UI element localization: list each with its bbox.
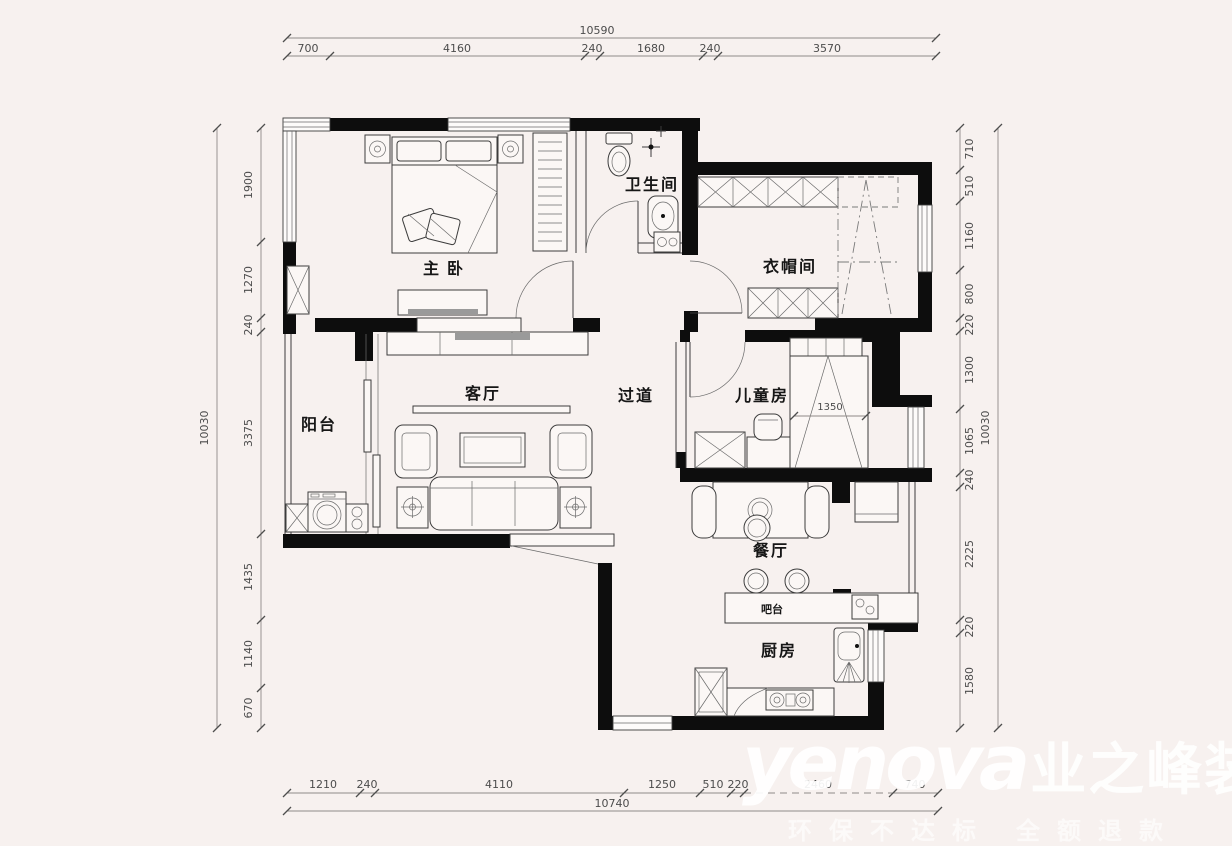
shaft-box	[287, 266, 309, 314]
sofa	[430, 477, 558, 530]
dresser-master	[398, 290, 487, 315]
nightstand-left	[365, 135, 390, 163]
fridge	[695, 668, 727, 716]
coffee-table	[460, 433, 525, 467]
dim-top-seg: 3570	[813, 42, 841, 55]
cloakroom-dashed-zone	[838, 177, 898, 318]
children-cabinet	[695, 432, 745, 468]
room-label-dining-room: 餐厅	[752, 541, 789, 560]
window-cloakroom-east	[918, 205, 932, 272]
stove	[766, 690, 813, 710]
dining-cabinet	[855, 482, 898, 522]
dining-chair-bottom	[744, 515, 770, 541]
room-label-master-bedroom: 主 卧	[423, 259, 465, 278]
nightstand-right	[498, 135, 523, 163]
dim-right-seg: 2225	[963, 540, 976, 568]
dim-right-total: 10030	[979, 411, 992, 446]
room-label-bathroom: 卫生间	[625, 175, 679, 194]
armchair-left	[395, 425, 437, 478]
balcony-sink	[346, 504, 368, 532]
floorplan-drawing: 主 卧 卫生间 衣帽间 过道 儿童房 客厅 阳台 餐厅 吧台 厨房 10590 …	[0, 0, 1232, 842]
room-label-kitchen: 厨房	[761, 641, 797, 660]
kitchen-sink	[834, 628, 864, 683]
door-bathroom	[586, 201, 638, 253]
side-table-left	[397, 487, 428, 528]
room-label-children-room: 儿童房	[734, 386, 789, 405]
dim-left-seg: 1140	[242, 640, 255, 668]
window-kitchen-south	[613, 716, 672, 730]
room-label-balcony: 阳台	[301, 415, 337, 434]
dim-right-seg: 220	[963, 617, 976, 638]
dining-chair-right	[805, 486, 829, 538]
window-master-west	[283, 131, 296, 242]
toilet	[606, 133, 632, 176]
dim-right-seg: 220	[963, 315, 976, 336]
dim-right-seg: 1300	[963, 356, 976, 384]
armchair-right	[550, 425, 592, 478]
dim-top-seg: 4160	[443, 42, 471, 55]
dim-left-seg: 240	[242, 315, 255, 336]
cloakroom-wardrobe-bottom	[748, 288, 838, 318]
dim-left-seg: 670	[242, 698, 255, 719]
room-label-hallway: 过道	[618, 386, 654, 405]
dim-right-seg: 510	[963, 176, 976, 197]
window-top-left	[283, 118, 330, 131]
window-children-east	[908, 407, 924, 468]
tv-cabinet	[387, 318, 588, 355]
dim-right-seg: 800	[963, 284, 976, 305]
window-master-north	[448, 118, 570, 131]
bed-master	[392, 137, 497, 253]
balcony-cabinet	[286, 504, 308, 532]
room-label-living-room: 客厅	[465, 384, 501, 403]
boundary-step	[512, 546, 598, 564]
dim-left-total: 10030	[198, 411, 211, 446]
room-label-cloakroom: 衣帽间	[763, 257, 817, 276]
south-ledge	[510, 534, 614, 546]
window-kitchen-east	[868, 630, 884, 682]
dim-bottom-seg: 220	[728, 778, 749, 791]
dim-top-seg: 700	[298, 42, 319, 55]
dim-bottom-seg: 740	[905, 778, 926, 791]
room-label-bar-counter: 吧台	[761, 602, 783, 616]
dim-right-seg: 1160	[963, 222, 976, 250]
dim-bottom-seg: 510	[703, 778, 724, 791]
door-cloakroom	[690, 261, 742, 313]
dim-left-seg: 1900	[242, 171, 255, 199]
floorplan-page: { "colors": { "background": "#f7f1ef", "…	[0, 0, 1232, 842]
sofa-console	[413, 406, 570, 413]
dim-top-seg: 240	[582, 42, 603, 55]
dim-left-seg: 1435	[242, 563, 255, 591]
dim-bottom-total: 10740	[595, 797, 630, 810]
washing-machine	[308, 492, 346, 532]
door-master	[516, 261, 573, 318]
bar	[725, 569, 918, 623]
dim-top-total: 10590	[580, 24, 615, 37]
dim-bottom-seg: 2460	[804, 778, 832, 791]
dim-bottom-seg: 4110	[485, 778, 513, 791]
side-table-right	[560, 487, 591, 528]
dim-left-seg: 1270	[242, 266, 255, 294]
cloakroom-wardrobe-top	[698, 177, 898, 207]
dim-bottom-seg: 1210	[309, 778, 337, 791]
children-desk	[747, 414, 790, 468]
dim-right-seg: 710	[963, 139, 976, 160]
bathroom-washer	[654, 232, 680, 252]
dim-children-bed: 1350	[817, 402, 842, 413]
dim-right-seg: 1580	[963, 667, 976, 695]
dim-right-seg: 1065	[963, 427, 976, 455]
dim-right-seg: 240	[963, 470, 976, 491]
dim-left-seg: 3375	[242, 419, 255, 447]
dim-bottom-seg: 1250	[648, 778, 676, 791]
dining-chair-left	[692, 486, 716, 538]
dim-top-seg: 240	[700, 42, 721, 55]
dim-bottom-seg: 240	[357, 778, 378, 791]
dim-top-seg: 1680	[637, 42, 665, 55]
wardrobe-master	[533, 133, 567, 251]
